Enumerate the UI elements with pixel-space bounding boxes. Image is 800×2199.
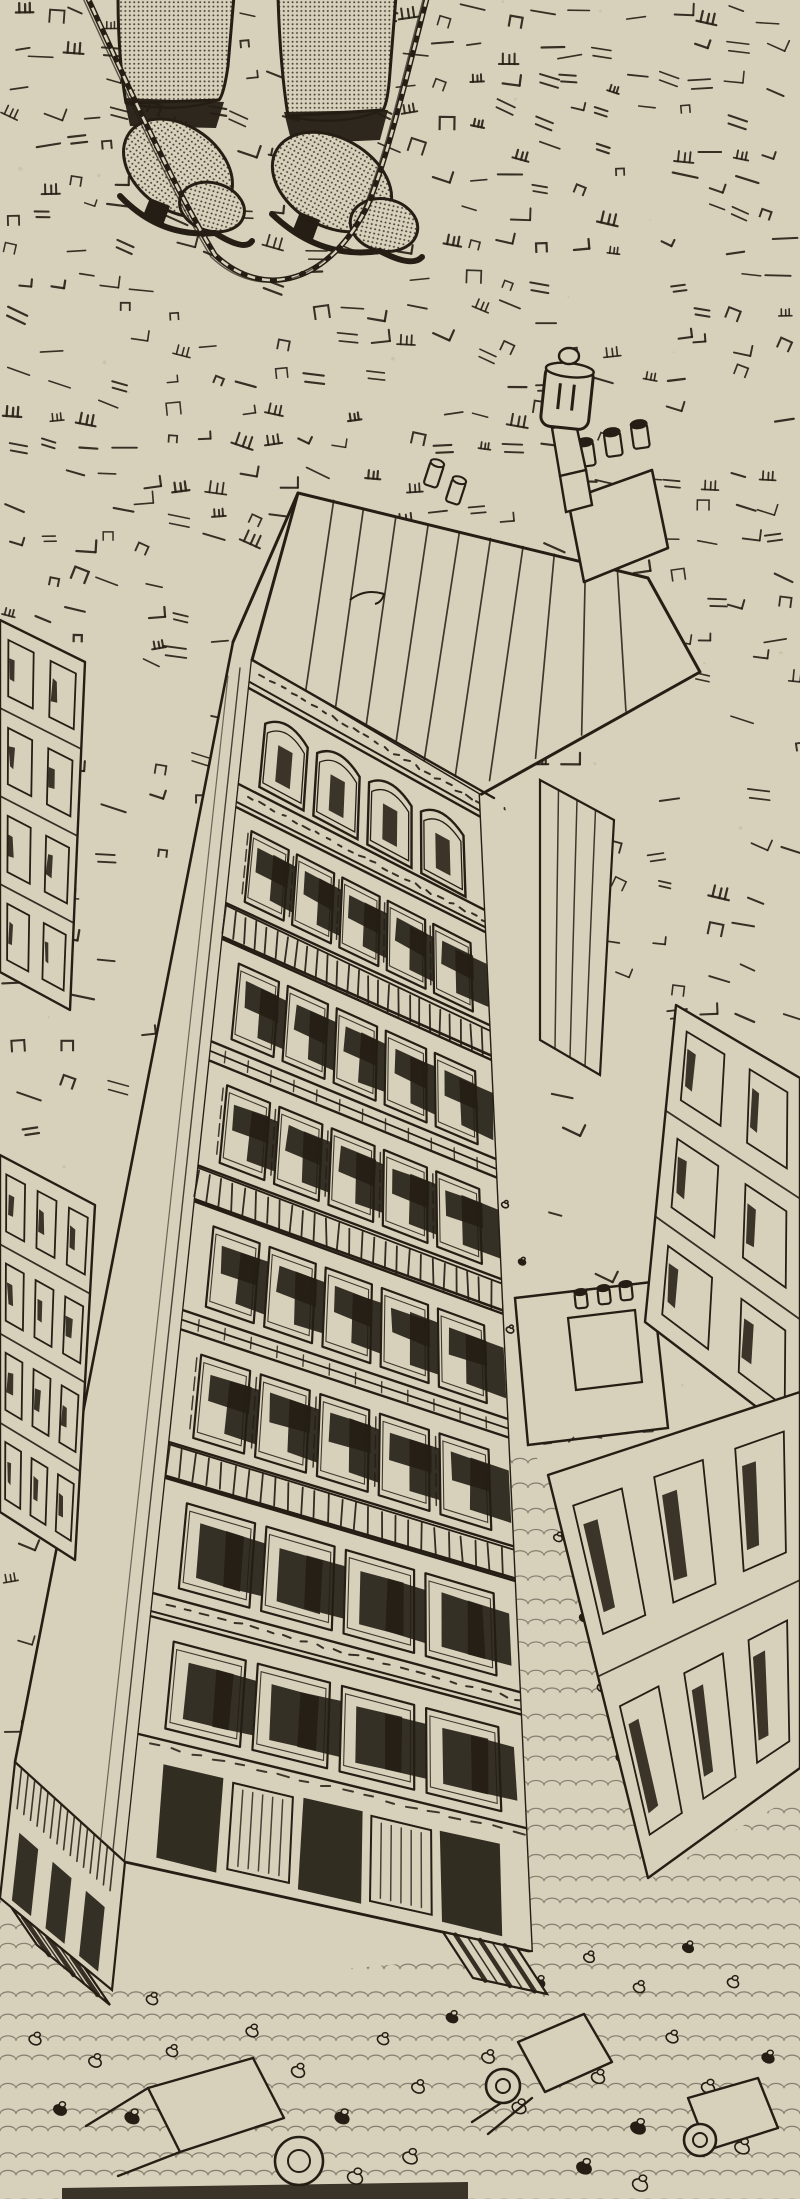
chimney-pot-icon — [619, 1280, 633, 1300]
neighbor-roof — [515, 1280, 668, 1445]
stove-pipe-cap — [540, 361, 595, 431]
trouser-leg — [278, 0, 396, 116]
chimney-pot-icon — [574, 1288, 588, 1308]
trouser-leg — [118, 0, 234, 103]
chimney-pot-icon — [603, 427, 623, 457]
left-edge-building — [0, 620, 85, 1010]
city-birds-eye-illustration — [0, 0, 800, 2199]
chimney-pot-icon — [630, 419, 650, 449]
chimney-pot-icon — [597, 1284, 611, 1304]
illustration-page — [0, 0, 800, 2199]
narrow-facade-strip — [540, 780, 614, 1075]
